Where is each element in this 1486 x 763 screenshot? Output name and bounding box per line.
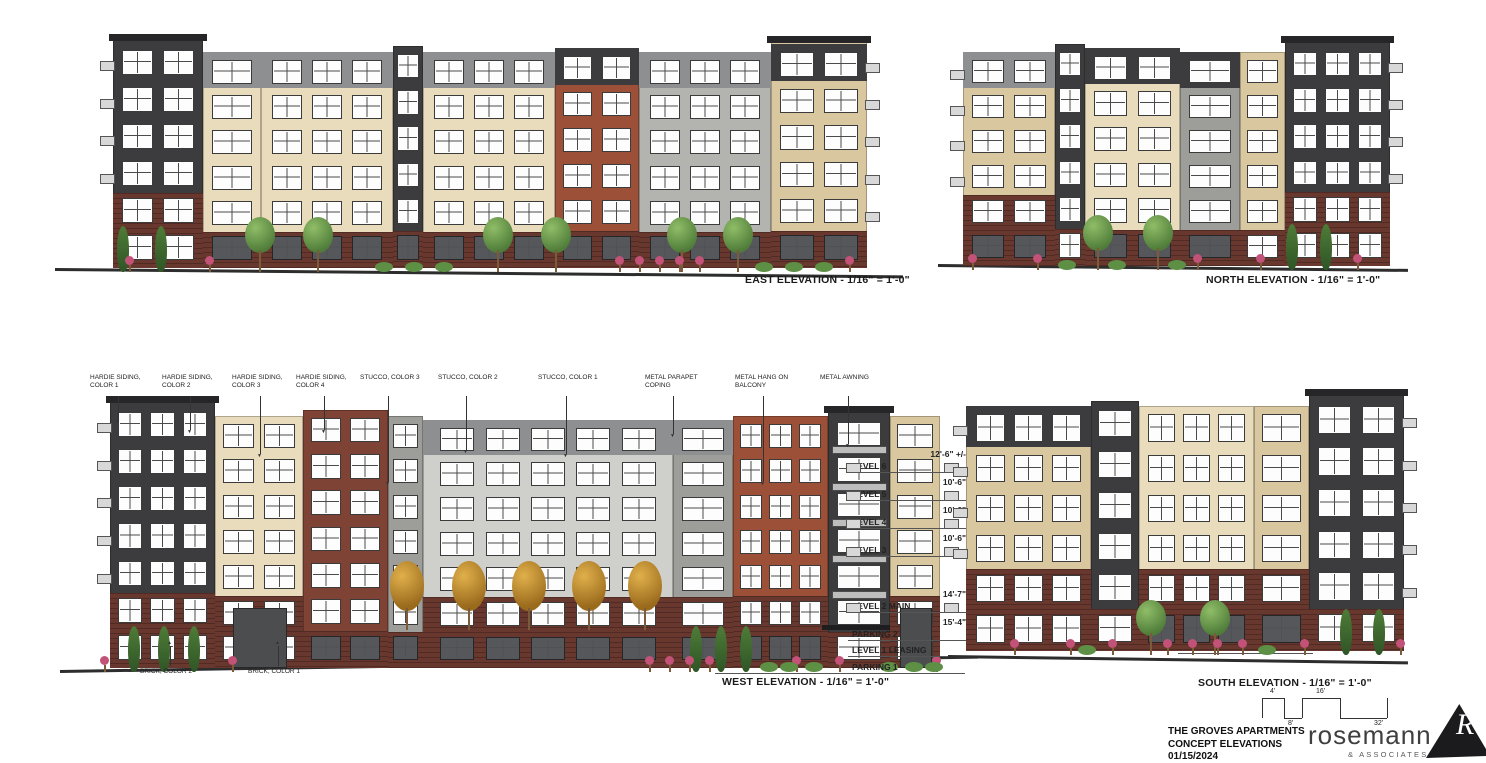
window-cell	[767, 525, 794, 558]
flower	[1353, 254, 1362, 263]
window-cell	[510, 55, 548, 88]
flower	[685, 656, 694, 665]
window	[1014, 200, 1046, 224]
tree-canopy	[572, 561, 606, 611]
window-cell	[1322, 83, 1352, 117]
landscape-fall	[452, 561, 486, 630]
window-cell	[510, 161, 548, 194]
window	[730, 60, 760, 84]
window	[183, 523, 207, 548]
window-cell	[968, 160, 1008, 193]
window	[897, 565, 932, 589]
window-cell	[1314, 400, 1356, 440]
window-cell	[348, 196, 386, 229]
landscape-sh	[1108, 260, 1126, 270]
window-cell	[572, 423, 615, 456]
flower	[615, 256, 624, 265]
window	[1094, 163, 1127, 187]
side-balcony	[953, 426, 968, 436]
flower-stem	[972, 263, 974, 270]
landscape-sh	[785, 262, 803, 272]
scale-segment	[1284, 718, 1302, 719]
window-cell	[726, 90, 764, 123]
window-cell	[1183, 125, 1237, 158]
window-cell	[206, 55, 258, 88]
window-cell	[348, 126, 386, 159]
window	[837, 422, 880, 446]
window	[1189, 165, 1231, 189]
window-cell	[307, 522, 344, 556]
window-cell	[430, 232, 468, 265]
callout-leader	[324, 396, 325, 430]
window	[824, 89, 857, 114]
tree-trunk	[528, 608, 530, 630]
window	[312, 95, 342, 119]
title-block: THE GROVES APARTMENTS CONCEPT ELEVATIONS…	[1168, 726, 1305, 763]
west-elevation-drawing: WEST ELEVATION - 1/16" = 1'-0" LEVEL 612…	[60, 370, 980, 700]
window-cell	[796, 490, 823, 523]
window	[976, 495, 1005, 522]
landscape-fl	[615, 256, 624, 272]
window-grid	[307, 413, 384, 665]
window	[264, 530, 295, 554]
parapet-coping-icon	[1305, 389, 1408, 396]
window-cell	[115, 593, 145, 628]
window-cell	[1290, 120, 1320, 154]
window-cell	[470, 126, 508, 159]
window-cell	[1010, 409, 1046, 447]
window	[976, 455, 1005, 482]
window-cell	[348, 232, 386, 265]
window-cell	[115, 556, 145, 591]
window-grid	[1290, 47, 1385, 263]
window-cell	[268, 126, 306, 159]
landscape-sh	[760, 662, 778, 672]
window-cell	[820, 157, 862, 192]
window	[272, 60, 302, 84]
window	[1052, 495, 1081, 522]
window	[976, 414, 1005, 441]
window	[1318, 489, 1351, 517]
window-cell	[118, 156, 158, 191]
side-balcony	[1402, 588, 1417, 598]
window-cell	[968, 55, 1008, 88]
landscape-fl	[1256, 254, 1265, 270]
window-cell	[1057, 229, 1084, 263]
window-cell	[1145, 409, 1178, 447]
side-balcony	[953, 467, 968, 477]
window	[223, 459, 254, 483]
window	[434, 130, 464, 154]
window	[1318, 406, 1351, 434]
window-cell	[820, 120, 862, 155]
window	[1183, 414, 1210, 441]
landscape-fl	[1213, 639, 1222, 655]
side-balcony	[865, 175, 880, 185]
shrub	[815, 262, 833, 272]
window-cell	[1215, 530, 1248, 568]
window	[769, 530, 791, 554]
side-balcony	[1402, 503, 1417, 513]
window	[150, 523, 174, 548]
window-cell	[726, 161, 764, 194]
window-cell	[219, 525, 258, 558]
window	[1218, 575, 1245, 602]
window	[972, 60, 1004, 84]
window	[780, 125, 813, 150]
landscape-fl	[705, 656, 714, 672]
flower-stem	[1192, 648, 1194, 655]
window-cell	[1358, 442, 1400, 482]
cypress-tree	[1320, 224, 1332, 270]
callout-arrow-icon: ▼	[257, 454, 262, 459]
window	[972, 95, 1004, 119]
window	[563, 92, 592, 116]
window-grid	[395, 49, 422, 265]
tree-trunk	[1157, 248, 1159, 270]
flower	[1193, 254, 1202, 263]
tree-canopy	[303, 217, 333, 253]
south-elevation-drawing: LOWER PARKING ENTRY SOUTH ELEVATION - 1/…	[948, 393, 1486, 693]
tree-canopy	[1143, 215, 1173, 251]
window-cell	[1010, 530, 1046, 568]
window-cell	[1355, 192, 1385, 226]
window-cell	[968, 125, 1008, 158]
datum-balcony	[846, 547, 861, 557]
window-cell	[738, 561, 765, 594]
window	[1293, 52, 1317, 77]
window-grid	[1314, 400, 1400, 648]
window	[1247, 200, 1279, 224]
window-cell	[1010, 55, 1050, 88]
tree-trunk	[497, 250, 499, 272]
window-cell	[598, 159, 635, 193]
window	[976, 535, 1005, 562]
window	[650, 130, 680, 154]
callout-arrow-icon: ▼	[845, 444, 850, 449]
window	[272, 130, 302, 154]
window-cell	[598, 87, 635, 121]
side-balcony	[950, 70, 965, 80]
window	[1358, 161, 1382, 186]
window	[122, 161, 153, 186]
window-cell	[1049, 449, 1085, 487]
window	[976, 615, 1005, 642]
window	[1218, 414, 1245, 441]
flower	[1010, 639, 1019, 648]
window-cell	[470, 161, 508, 194]
flower	[635, 256, 644, 265]
window-cell	[1057, 156, 1084, 190]
window	[350, 527, 380, 552]
window	[352, 201, 382, 225]
window-cell	[159, 156, 199, 191]
window	[311, 454, 341, 479]
window-cell	[598, 123, 635, 157]
window-cell	[308, 55, 346, 88]
window	[563, 56, 592, 80]
scale-tick	[1262, 698, 1263, 718]
window	[352, 236, 382, 260]
window	[163, 50, 194, 75]
window	[690, 60, 720, 84]
window-cell	[147, 556, 177, 591]
landscape-sh	[805, 662, 823, 672]
flower	[1033, 254, 1042, 263]
window-cell	[510, 126, 548, 159]
window	[1318, 447, 1351, 475]
window	[183, 449, 207, 474]
scale-label-16: 16'	[1316, 688, 1325, 695]
side-balcony	[953, 508, 968, 518]
window	[1059, 52, 1081, 77]
window-cell	[1183, 90, 1237, 123]
north-elevation-drawing: NORTH ELEVATION - 1/16" = 1'-0"	[938, 12, 1413, 292]
material-callout: METAL HANG ON BALCONY	[735, 374, 801, 390]
window-cell	[1049, 570, 1085, 608]
window-cell	[1322, 156, 1352, 190]
tree-canopy	[245, 217, 275, 253]
window-cell	[559, 159, 596, 193]
landscape-sh	[435, 262, 453, 272]
material-callout: STUCCO, COLOR 1	[538, 374, 604, 382]
window-cell	[159, 82, 199, 117]
window-cell	[347, 449, 384, 483]
window	[972, 200, 1004, 224]
flower-stem	[649, 665, 651, 672]
window	[393, 459, 418, 483]
window-cell	[481, 528, 524, 561]
flower	[228, 656, 237, 665]
window-cell	[526, 423, 569, 456]
window-grid	[1257, 409, 1307, 648]
window-grid	[972, 409, 1085, 648]
east-elevation-drawing: EAST ELEVATION - 1/16" = 1'-0"	[55, 12, 905, 292]
window-cell	[572, 458, 615, 491]
window-cell	[1183, 55, 1237, 88]
sheet-date: 01/15/2024	[1168, 751, 1305, 763]
window	[1138, 127, 1171, 151]
flower	[665, 656, 674, 665]
cypress-tree	[715, 626, 727, 672]
window	[1052, 535, 1081, 562]
elevation-sheet: EAST ELEVATION - 1/16" = 1'-0" NORTH ELE…	[0, 0, 1486, 763]
window-grid	[776, 47, 862, 265]
window-cell	[180, 593, 210, 628]
flower-stem	[1400, 648, 1402, 655]
window-cell	[646, 90, 684, 123]
window	[780, 162, 813, 187]
side-balcony	[97, 498, 112, 508]
window	[350, 490, 380, 515]
flower-stem	[1070, 648, 1072, 655]
window	[799, 459, 821, 483]
shrub	[905, 662, 923, 672]
window	[1098, 574, 1132, 602]
window-cell	[1290, 156, 1320, 190]
window-cell	[308, 90, 346, 123]
window-cell	[1322, 120, 1352, 154]
window	[1183, 535, 1210, 562]
window	[1262, 615, 1301, 642]
window	[1293, 88, 1317, 113]
window-cell	[1134, 158, 1176, 192]
window	[1262, 535, 1301, 562]
window-cell	[820, 84, 862, 119]
window	[602, 128, 631, 152]
window	[1014, 414, 1043, 441]
window	[650, 60, 680, 84]
window-cell	[646, 161, 684, 194]
landscape-sh	[815, 262, 833, 272]
datum-balcony	[846, 491, 861, 501]
window	[440, 532, 474, 556]
window	[122, 87, 153, 112]
flower-stem	[619, 265, 621, 272]
window-cell	[1314, 525, 1356, 565]
window	[212, 95, 253, 119]
window-cell	[159, 119, 199, 154]
window-cell	[776, 84, 818, 119]
window-cell	[307, 558, 344, 592]
west-elevation-caption: WEST ELEVATION - 1/16" = 1'-0"	[722, 676, 889, 688]
window-cell	[1257, 610, 1307, 648]
landscape-fl	[968, 254, 977, 270]
window-cell	[1314, 483, 1356, 523]
landscape-fl	[1033, 254, 1042, 270]
flower	[1238, 639, 1247, 648]
side-balcony	[100, 174, 115, 184]
window-cell	[1134, 87, 1176, 121]
parapet-coping-icon	[1281, 36, 1394, 43]
window-cell	[1010, 160, 1050, 193]
window	[264, 565, 295, 589]
window	[163, 87, 194, 112]
window	[622, 462, 656, 486]
window-cell	[1314, 567, 1356, 607]
window	[311, 490, 341, 515]
window	[897, 424, 932, 448]
tree-trunk	[555, 250, 557, 272]
callout-leader	[848, 396, 849, 444]
window	[1138, 56, 1171, 80]
facade-segment	[963, 52, 1055, 266]
window-cell	[219, 419, 258, 452]
window	[730, 95, 760, 119]
facade-segment	[1180, 52, 1240, 266]
window-cell	[206, 126, 258, 159]
window-cell	[1242, 55, 1283, 88]
window	[740, 601, 762, 625]
facade-segment	[393, 46, 423, 268]
landscape-sh	[780, 662, 798, 672]
window-cell	[436, 528, 479, 561]
window	[1052, 414, 1081, 441]
tree-canopy	[512, 561, 546, 611]
window	[824, 199, 857, 224]
window	[1325, 52, 1349, 77]
window	[650, 95, 680, 119]
flower-stem	[839, 665, 841, 672]
window-cell	[147, 407, 177, 442]
shrub	[925, 662, 943, 672]
shrub	[375, 262, 393, 272]
window	[1094, 91, 1127, 115]
window-cell	[1180, 409, 1213, 447]
window	[1014, 130, 1046, 154]
window	[150, 598, 174, 623]
window	[350, 636, 380, 661]
window-cell	[481, 423, 524, 456]
window-cell	[118, 193, 158, 228]
cypress-tree	[188, 626, 200, 672]
cypress-tree	[1286, 224, 1298, 270]
window	[576, 428, 610, 452]
window-cell	[481, 458, 524, 491]
window	[1059, 233, 1081, 258]
window-cell	[1242, 90, 1283, 123]
window	[118, 449, 142, 474]
landscape-fl	[835, 656, 844, 672]
window-cell	[1010, 230, 1050, 263]
window-cell	[347, 413, 384, 447]
window	[602, 56, 631, 80]
landscape-tree	[483, 217, 513, 272]
flower	[1188, 639, 1197, 648]
window	[1014, 575, 1043, 602]
window	[740, 424, 762, 448]
window	[1293, 124, 1317, 149]
window-cell	[776, 230, 818, 265]
window	[1094, 127, 1127, 151]
window	[730, 130, 760, 154]
flower	[695, 256, 704, 265]
window	[1325, 197, 1349, 222]
window	[1358, 88, 1382, 113]
flower-stem	[679, 265, 681, 272]
landscape-sh	[755, 262, 773, 272]
flower-stem	[699, 265, 701, 272]
flower-stem	[1037, 263, 1039, 270]
flower-stem	[639, 265, 641, 272]
window-cell	[796, 419, 823, 452]
landscape-sh	[1258, 645, 1276, 655]
flower	[1396, 639, 1405, 648]
window-cell	[470, 55, 508, 88]
window-cell	[820, 47, 862, 82]
window	[1098, 533, 1132, 561]
material-callout: HARDIE SIDING, COLOR 1	[90, 374, 156, 390]
side-balcony	[100, 61, 115, 71]
window-cell	[1057, 192, 1084, 226]
landscape-fl	[655, 256, 664, 272]
landscape-fall	[512, 561, 546, 630]
window-cell	[1010, 489, 1046, 527]
window-cell	[1183, 230, 1237, 263]
window-cell	[307, 449, 344, 483]
level-label: PARKING 1	[852, 662, 898, 672]
window-cell	[738, 596, 765, 629]
facade-segment	[1055, 44, 1085, 266]
window-cell	[617, 493, 660, 526]
facade-segment	[423, 420, 673, 668]
window	[1138, 163, 1171, 187]
window	[1059, 197, 1081, 222]
logo-triangle-mark: R	[1426, 704, 1486, 758]
window-cell	[1355, 156, 1385, 190]
window	[531, 428, 565, 452]
window-cell	[395, 122, 422, 156]
